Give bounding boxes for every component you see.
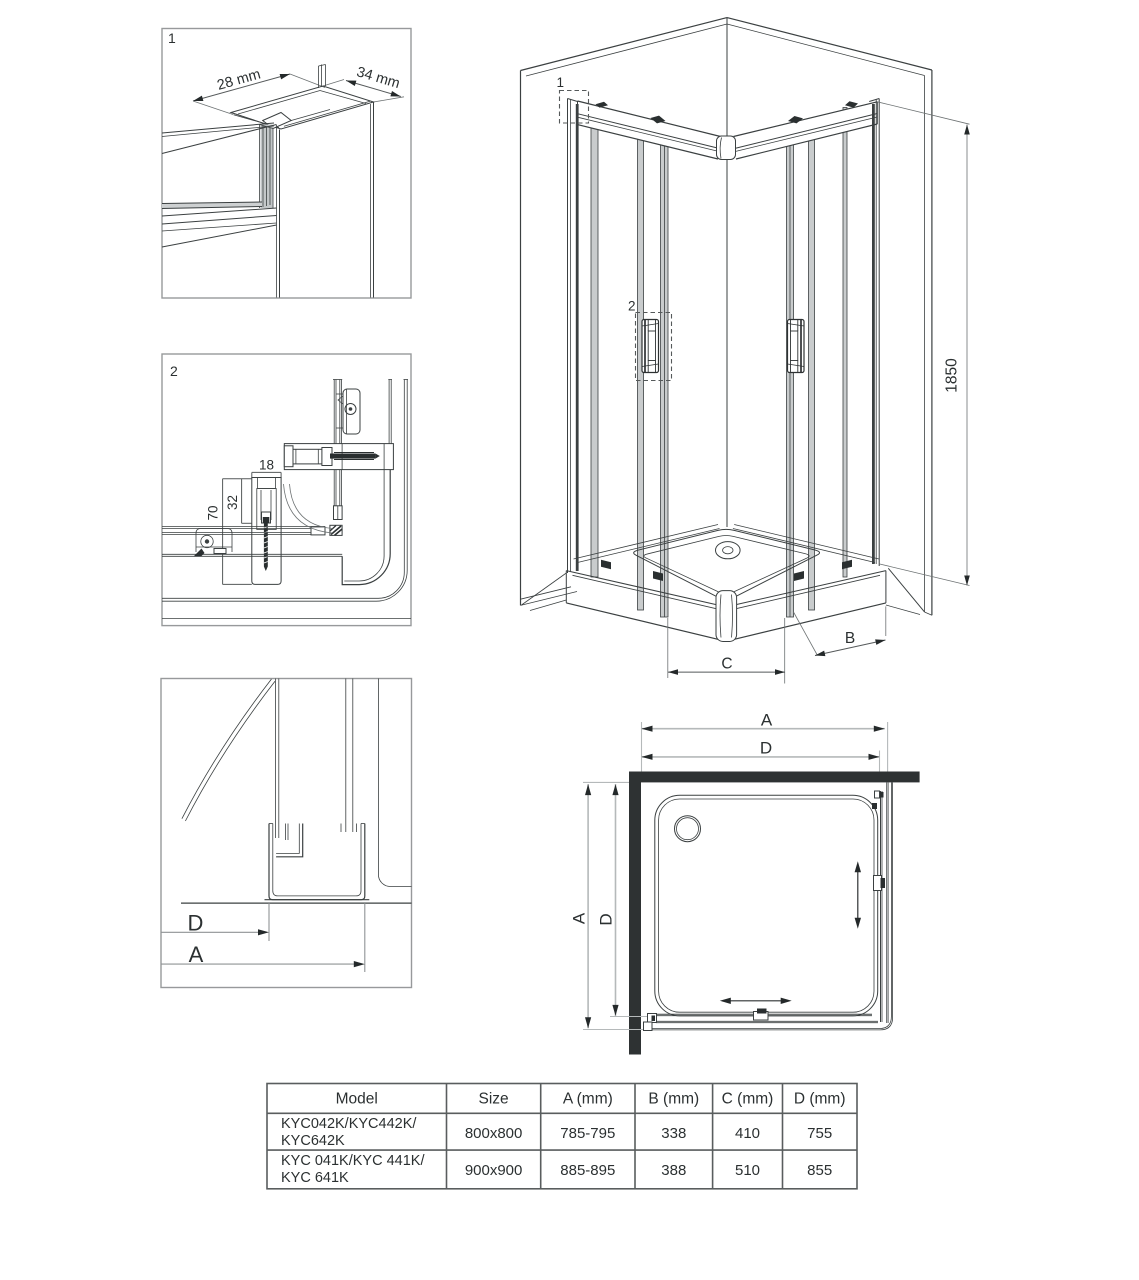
svg-text:70: 70 <box>206 505 221 520</box>
svg-text:Model: Model <box>336 1091 378 1108</box>
svg-text:B: B <box>845 630 855 647</box>
svg-text:A: A <box>761 711 773 730</box>
svg-text:900x900: 900x900 <box>465 1162 523 1179</box>
svg-text:755: 755 <box>807 1125 832 1142</box>
svg-text:KYC 641K: KYC 641K <box>281 1170 349 1186</box>
svg-text:A: A <box>189 942 204 967</box>
svg-text:1: 1 <box>168 30 176 46</box>
svg-text:D: D <box>597 913 616 925</box>
svg-text:A: A <box>570 912 589 924</box>
svg-text:A (mm): A (mm) <box>563 1091 613 1108</box>
svg-text:Size: Size <box>479 1091 509 1108</box>
svg-text:KYC042K/KYC442K/: KYC042K/KYC442K/ <box>281 1116 417 1132</box>
svg-text:855: 855 <box>807 1162 832 1179</box>
svg-text:KYC642K: KYC642K <box>281 1133 345 1149</box>
svg-text:1850: 1850 <box>944 358 961 393</box>
svg-text:KYC 041K/KYC 441K/: KYC 041K/KYC 441K/ <box>281 1153 425 1169</box>
svg-text:388: 388 <box>661 1162 686 1179</box>
svg-text:1: 1 <box>557 75 565 90</box>
svg-text:785-795: 785-795 <box>560 1125 615 1142</box>
svg-text:338: 338 <box>661 1125 686 1142</box>
svg-text:C (mm): C (mm) <box>722 1091 774 1108</box>
svg-text:800x800: 800x800 <box>465 1125 523 1142</box>
svg-text:18: 18 <box>259 458 274 473</box>
svg-text:D (mm): D (mm) <box>794 1091 846 1108</box>
svg-text:2: 2 <box>628 299 636 314</box>
svg-text:D: D <box>188 911 204 936</box>
svg-text:2: 2 <box>170 363 178 379</box>
svg-text:885-895: 885-895 <box>560 1162 615 1179</box>
svg-text:B (mm): B (mm) <box>648 1091 699 1108</box>
svg-text:410: 410 <box>735 1125 760 1142</box>
svg-text:C: C <box>721 656 732 673</box>
svg-text:510: 510 <box>735 1162 760 1179</box>
svg-text:D: D <box>760 739 772 758</box>
svg-text:32: 32 <box>225 495 240 510</box>
